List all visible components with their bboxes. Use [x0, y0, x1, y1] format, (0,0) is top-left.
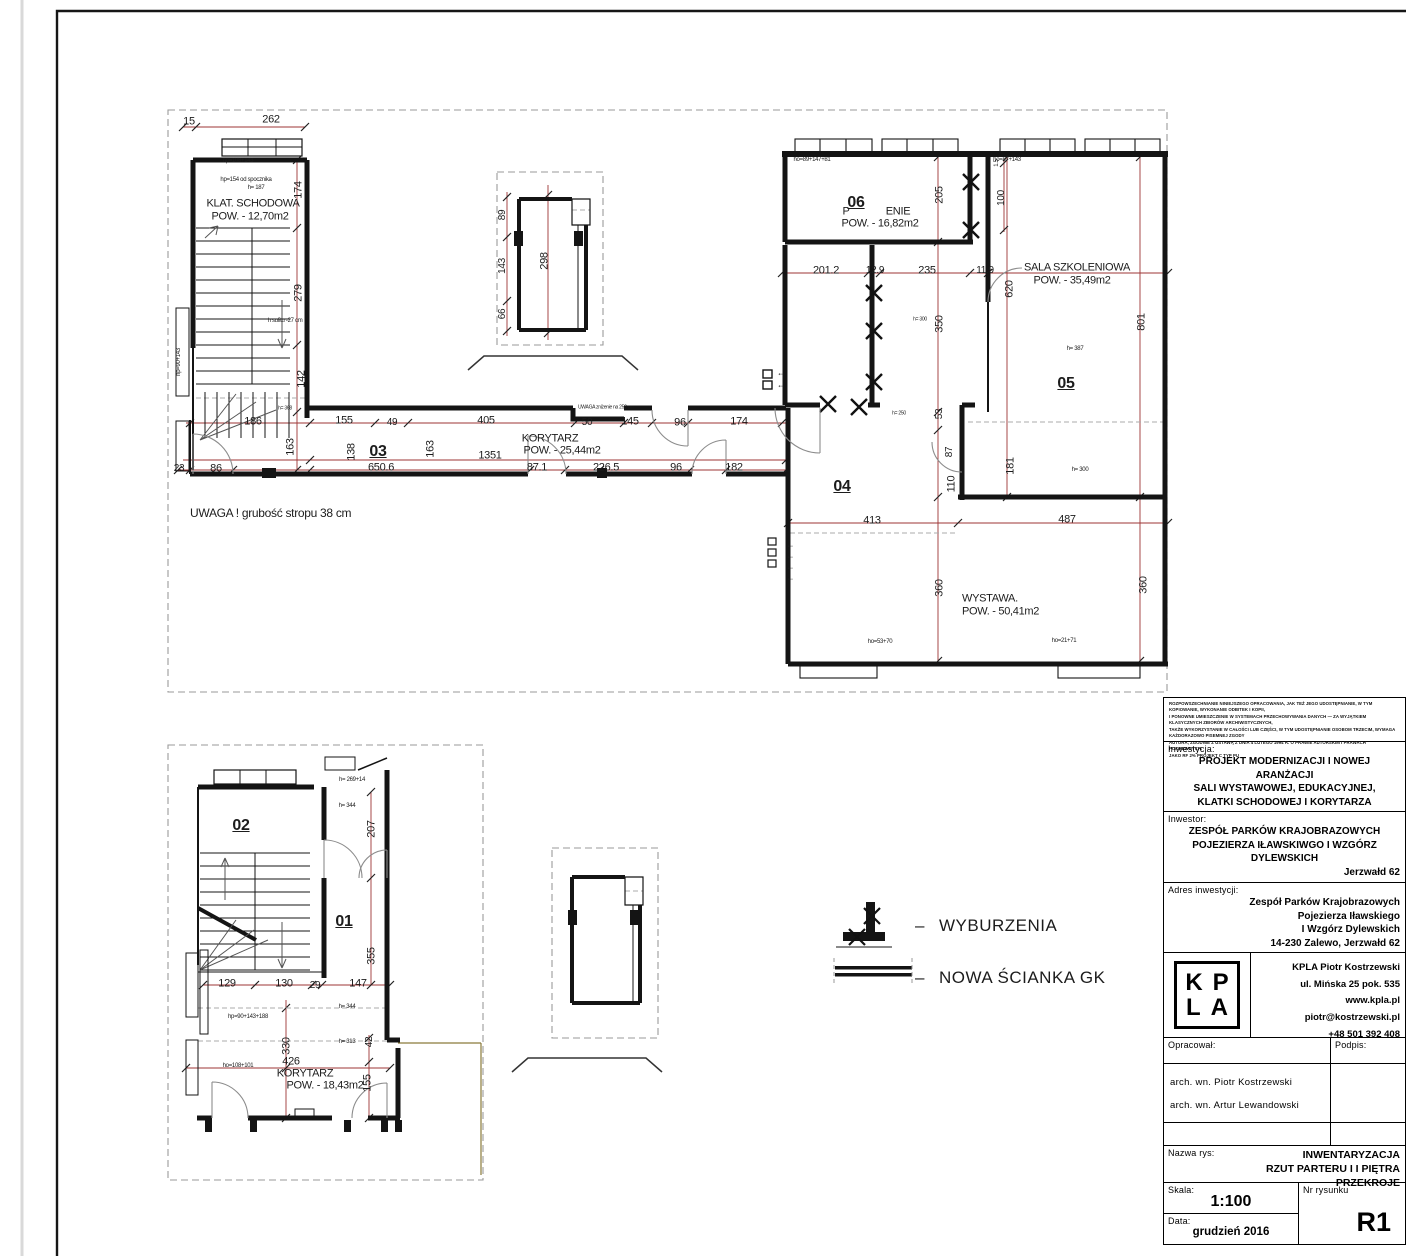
plan-label: 226.5 — [593, 463, 619, 474]
legend-label-nowa-scianka: NOWA ŚCIANKA GK — [939, 968, 1106, 988]
empty-row — [1164, 1123, 1405, 1146]
legend-item-new-wall: – NOWA ŚCIANKA GK — [915, 968, 1106, 988]
plan-label: 15 — [183, 117, 195, 128]
plan-label: 89 — [498, 210, 508, 221]
plan-label: 163 — [426, 440, 437, 457]
plan-label: 49 — [387, 418, 398, 428]
plan-label: 405 — [477, 416, 494, 427]
plan-label: 360 — [1139, 576, 1150, 593]
plan-label: hp=90+143 — [176, 348, 182, 376]
plan-label: 205 — [935, 186, 946, 203]
adres-label: Adres inwestycji: — [1164, 883, 1405, 895]
copyright-disclaimer: ROZPOWSZECHNIANIE NINIEJSZEGO OPRACOWANI… — [1164, 698, 1405, 742]
plan-label: 155 — [335, 416, 352, 427]
plan-label: ho=87+143 — [993, 157, 1021, 163]
plan-label: KORYTARZ — [277, 1069, 333, 1080]
address-section: Adres inwestycji: Zespół Parków Krajobra… — [1164, 883, 1405, 953]
scale-cell: Skala: 1:100 — [1164, 1183, 1298, 1214]
plan-label: 487 — [1058, 515, 1075, 526]
plan-label: h= 300 — [1072, 467, 1089, 473]
plan-label: 87.1 — [527, 463, 547, 474]
plan-label: 96 — [674, 418, 686, 429]
plan-label: P — [842, 207, 849, 218]
plan-label: 23 — [174, 464, 185, 474]
opracowal-label: Opracował: — [1164, 1038, 1331, 1063]
plan-label: KLAT. SCHODOWA — [207, 199, 300, 210]
plan-label: WYSTAWA. — [962, 594, 1018, 605]
plan-label: h= 300 — [913, 318, 927, 323]
plan-label: 186 — [244, 417, 261, 428]
project-title: PROJEKT MODERNIZACJI I NOWEJ ARANŻACJISA… — [1164, 754, 1405, 810]
studio-contact: KPLA Piotr Kostrzewskiul. Mińska 25 pok.… — [1251, 953, 1405, 1037]
studio-section: KP LA KPLA Piotr Kostrzewskiul. Mińska 2… — [1164, 953, 1405, 1038]
legend-label-wyburzenia: WYBURZENIA — [939, 916, 1057, 936]
plan-label: 130 — [275, 979, 292, 990]
plan-label: POW. - 12,70m2 — [211, 212, 288, 223]
logo-line1: KP — [1175, 970, 1238, 995]
plan-label: KORYTARZ — [522, 434, 578, 445]
plan-label: 235 — [918, 266, 935, 277]
plan-label: 298 — [540, 252, 551, 269]
plan-label: h= 313 — [339, 1039, 356, 1045]
plan-label: 66 — [498, 309, 508, 320]
plan-label: h= 187 — [248, 185, 265, 191]
plan-label: 155 — [363, 1074, 374, 1091]
plan-label: 129 — [218, 979, 235, 990]
plan-label: ← — [777, 369, 786, 378]
drawing-number: R1 — [1356, 1207, 1391, 1238]
nazwa-label: Nazwa rys: — [1164, 1146, 1215, 1158]
plan-label: hp=154 od spocznika — [220, 177, 271, 183]
plan-label: ← — [786, 552, 795, 561]
plan-label: 145 — [621, 417, 638, 428]
title-block: ROZPOWSZECHNIANIE NINIEJSZEGO OPRACOWANI… — [1163, 697, 1406, 1245]
inwestor-label: Inwestor: — [1164, 812, 1405, 824]
plan-label: 650.6 — [368, 463, 394, 474]
plan-label: POW. - 25,44m2 — [523, 446, 600, 457]
plan-label: hp=90+143+188 — [228, 1014, 268, 1020]
date-value: grudzień 2016 — [1164, 1226, 1298, 1238]
plan-label: 262 — [262, 115, 279, 126]
plan-label: 50 — [582, 418, 593, 428]
plan-label: 04 — [833, 479, 850, 495]
plan-label: 350 — [935, 315, 946, 332]
plan-label: SALA SZKOLENIOWA — [1024, 263, 1130, 274]
plan-label: 182 — [725, 463, 742, 474]
plan-label: 355 — [367, 947, 378, 964]
plan-label: 360 — [935, 579, 946, 596]
plan-label: 142 — [297, 370, 308, 387]
plan-label: 413 — [863, 516, 880, 527]
plan-label: 87 — [945, 447, 955, 458]
plan-label: h= 344 — [339, 803, 356, 809]
plan-label: 279 — [294, 284, 305, 301]
authors-header: Opracował: Podpis: — [1164, 1038, 1405, 1064]
legend-dash: – — [915, 968, 925, 988]
plan-label: POW. - 16,82m2 — [841, 219, 918, 230]
plan-label: 181 — [1006, 457, 1017, 474]
plan-label: 426 — [282, 1057, 299, 1068]
inwestycja-label: Inwestycja: — [1164, 742, 1405, 754]
plan-label: 147 — [349, 979, 366, 990]
plan-label: ho=21+71 — [1052, 638, 1077, 644]
plan-label: h= 269+14 — [339, 777, 365, 783]
plan-label: 100 — [997, 190, 1007, 206]
authors-row: arch. wn. Piotr Kostrzewskiarch. wn. Art… — [1164, 1064, 1405, 1123]
plan-label: 110 — [947, 476, 958, 493]
drawing-name-section: Nazwa rys: INWENTARYZACJARZUT PARTERU I … — [1164, 1146, 1405, 1183]
plan-label: 86 — [210, 464, 222, 475]
plan-label: ← — [777, 381, 786, 390]
logo-line2: LA — [1176, 995, 1238, 1020]
date-cell: Data: grudzień 2016 — [1164, 1214, 1298, 1244]
data-label: Data: — [1164, 1214, 1298, 1226]
nr-label: Nr rysunku — [1299, 1183, 1405, 1195]
plan-label: POW. - 50,41m2 — [962, 607, 1039, 618]
investor-name: ZESPÓŁ PARKÓW KRAJOBRAZOWYCHPOJEZIERZA I… — [1164, 824, 1405, 880]
project-section: Inwestycja: PROJEKT MODERNIZACJI I NOWEJ… — [1164, 742, 1405, 812]
scale-value: 1:100 — [1164, 1193, 1298, 1211]
plan-label: 163 — [286, 438, 297, 455]
plan-label: 53 — [935, 409, 945, 420]
author-names: arch. wn. Piotr Kostrzewskiarch. wn. Art… — [1164, 1064, 1331, 1122]
plan-label: 330 — [282, 1037, 293, 1054]
plan-label: 620 — [1005, 280, 1016, 297]
legend-item-demolition: – WYBURZENIA — [915, 916, 1057, 936]
plan-label: 11.9 — [976, 266, 994, 276]
plan-label: 138 — [347, 443, 358, 460]
plan-label: 207 — [367, 820, 378, 837]
plan-label: 201.2 — [813, 266, 839, 277]
plan-label: ← — [786, 574, 795, 583]
plan-label: 29 — [310, 981, 321, 991]
plan-label: ENIE — [886, 207, 910, 218]
plan-label: 06 — [847, 195, 864, 211]
plan-label: ho=108+101 — [223, 1063, 254, 1069]
plan-label: POW. - 18,43m2 — [286, 1081, 363, 1092]
plan-label: 174 — [294, 181, 305, 198]
plan-label: ho=53+70 — [868, 639, 893, 645]
investor-section: Inwestor: ZESPÓŁ PARKÓW KRAJOBRAZOWYCHPO… — [1164, 812, 1405, 883]
plan-label: h= 250 — [892, 412, 906, 417]
plan-label: POW. - 35,49m2 — [1033, 276, 1110, 287]
plan-label: ← — [786, 563, 795, 572]
signature-cell — [1331, 1064, 1405, 1122]
kpla-logo: KP LA — [1164, 953, 1251, 1037]
plan-label: ho=89+147+81 — [794, 157, 831, 163]
plan-label: ← — [786, 541, 795, 550]
plan-label: 02 — [232, 818, 249, 834]
podpis-label: Podpis: — [1331, 1038, 1405, 1063]
plan-label: UWAGA ! grubość stropu 38 cm — [190, 507, 351, 519]
plan-label: 1351 — [478, 451, 501, 462]
plan-label: h= 387 — [1067, 346, 1084, 352]
plan-label: 42 — [365, 1037, 375, 1048]
plan-label: hp=108+143 — [223, 158, 254, 164]
drawing-number-cell: Nr rysunku R1 — [1299, 1183, 1405, 1244]
plan-label: 12.9 — [866, 266, 884, 276]
plan-label: 03 — [369, 444, 386, 460]
plan-label: UWAGA zniżenie na 250 cm — [578, 406, 634, 411]
plan-label: 801 — [1137, 313, 1148, 330]
plan-label: 01 — [335, 914, 352, 930]
plan-label: h= 344 — [339, 1004, 356, 1010]
drawing-sheet: 15262174279142KLAT. SCHODOWAPOW. - 12,70… — [0, 0, 1409, 1256]
scale-date-number: Skala: 1:100 Data: grudzień 2016 Nr rysu… — [1164, 1183, 1405, 1244]
plan-label: 143 — [498, 258, 508, 274]
legend-dash: – — [915, 916, 925, 936]
plan-label: 174 — [730, 417, 747, 428]
plan-label: h= 368 — [278, 407, 292, 412]
plan-label: 05 — [1057, 376, 1074, 392]
plan-label: 96 — [670, 463, 682, 474]
plan-label: h sufitu -27 cm — [268, 318, 303, 324]
investment-address: Zespół Parków KrajobrazowychPojezierza I… — [1164, 895, 1405, 951]
